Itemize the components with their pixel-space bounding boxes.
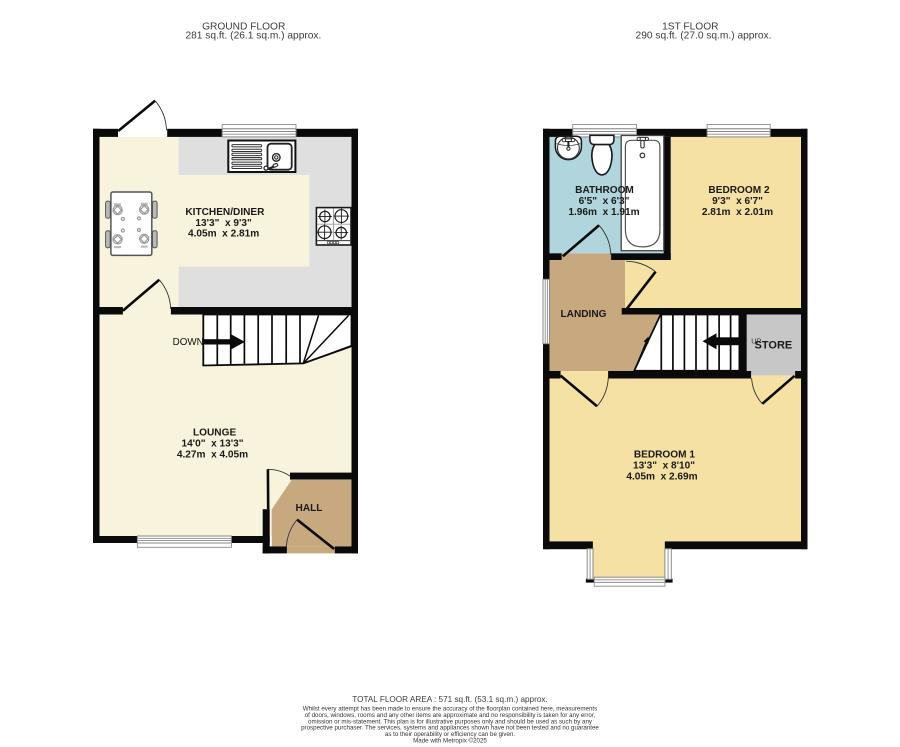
svg-text:Made with Metropix ©2025: Made with Metropix ©2025 (413, 738, 487, 745)
svg-text:4.27m x 4.05m: 4.27m x 4.05m (177, 449, 248, 460)
svg-text:9'3" x 6'7": 9'3" x 6'7" (712, 196, 763, 207)
svg-text:281 sq.ft. (26.1 sq.m.) approx: 281 sq.ft. (26.1 sq.m.) approx. (185, 31, 321, 42)
svg-text:13'3" x 9'3": 13'3" x 9'3" (195, 218, 252, 229)
svg-text:BEDROOM 2: BEDROOM 2 (708, 185, 770, 196)
svg-text:290 sq.ft. (27.0 sq.m.) approx: 290 sq.ft. (27.0 sq.m.) approx. (636, 31, 772, 42)
svg-text:KITCHEN/DINER: KITCHEN/DINER (185, 207, 265, 218)
svg-text:6'5" x 6'3": 6'5" x 6'3" (579, 196, 630, 207)
svg-text:LANDING: LANDING (561, 309, 607, 320)
svg-text:TOTAL FLOOR AREA : 571 sq.ft.: TOTAL FLOOR AREA : 571 sq.ft. (53.1 sq.m… (352, 695, 548, 704)
svg-text:HALL: HALL (296, 503, 323, 514)
svg-text:4.05m x 2.69m: 4.05m x 2.69m (626, 471, 697, 482)
svg-text:DOWN: DOWN (173, 337, 204, 348)
svg-text:STORE: STORE (755, 339, 793, 351)
svg-text:14'0" x 13'3": 14'0" x 13'3" (181, 438, 243, 449)
svg-text:1.96m x 1.91m: 1.96m x 1.91m (568, 207, 639, 218)
svg-text:BEDROOM 1: BEDROOM 1 (634, 450, 696, 461)
svg-text:LOUNGE: LOUNGE (193, 428, 236, 439)
svg-text:BATHROOM: BATHROOM (575, 185, 634, 196)
svg-text:13'3" x 8'10": 13'3" x 8'10" (633, 460, 695, 471)
svg-text:2.81m x 2.01m: 2.81m x 2.01m (702, 207, 773, 218)
svg-text:4.05m x 2.81m: 4.05m x 2.81m (188, 229, 259, 240)
